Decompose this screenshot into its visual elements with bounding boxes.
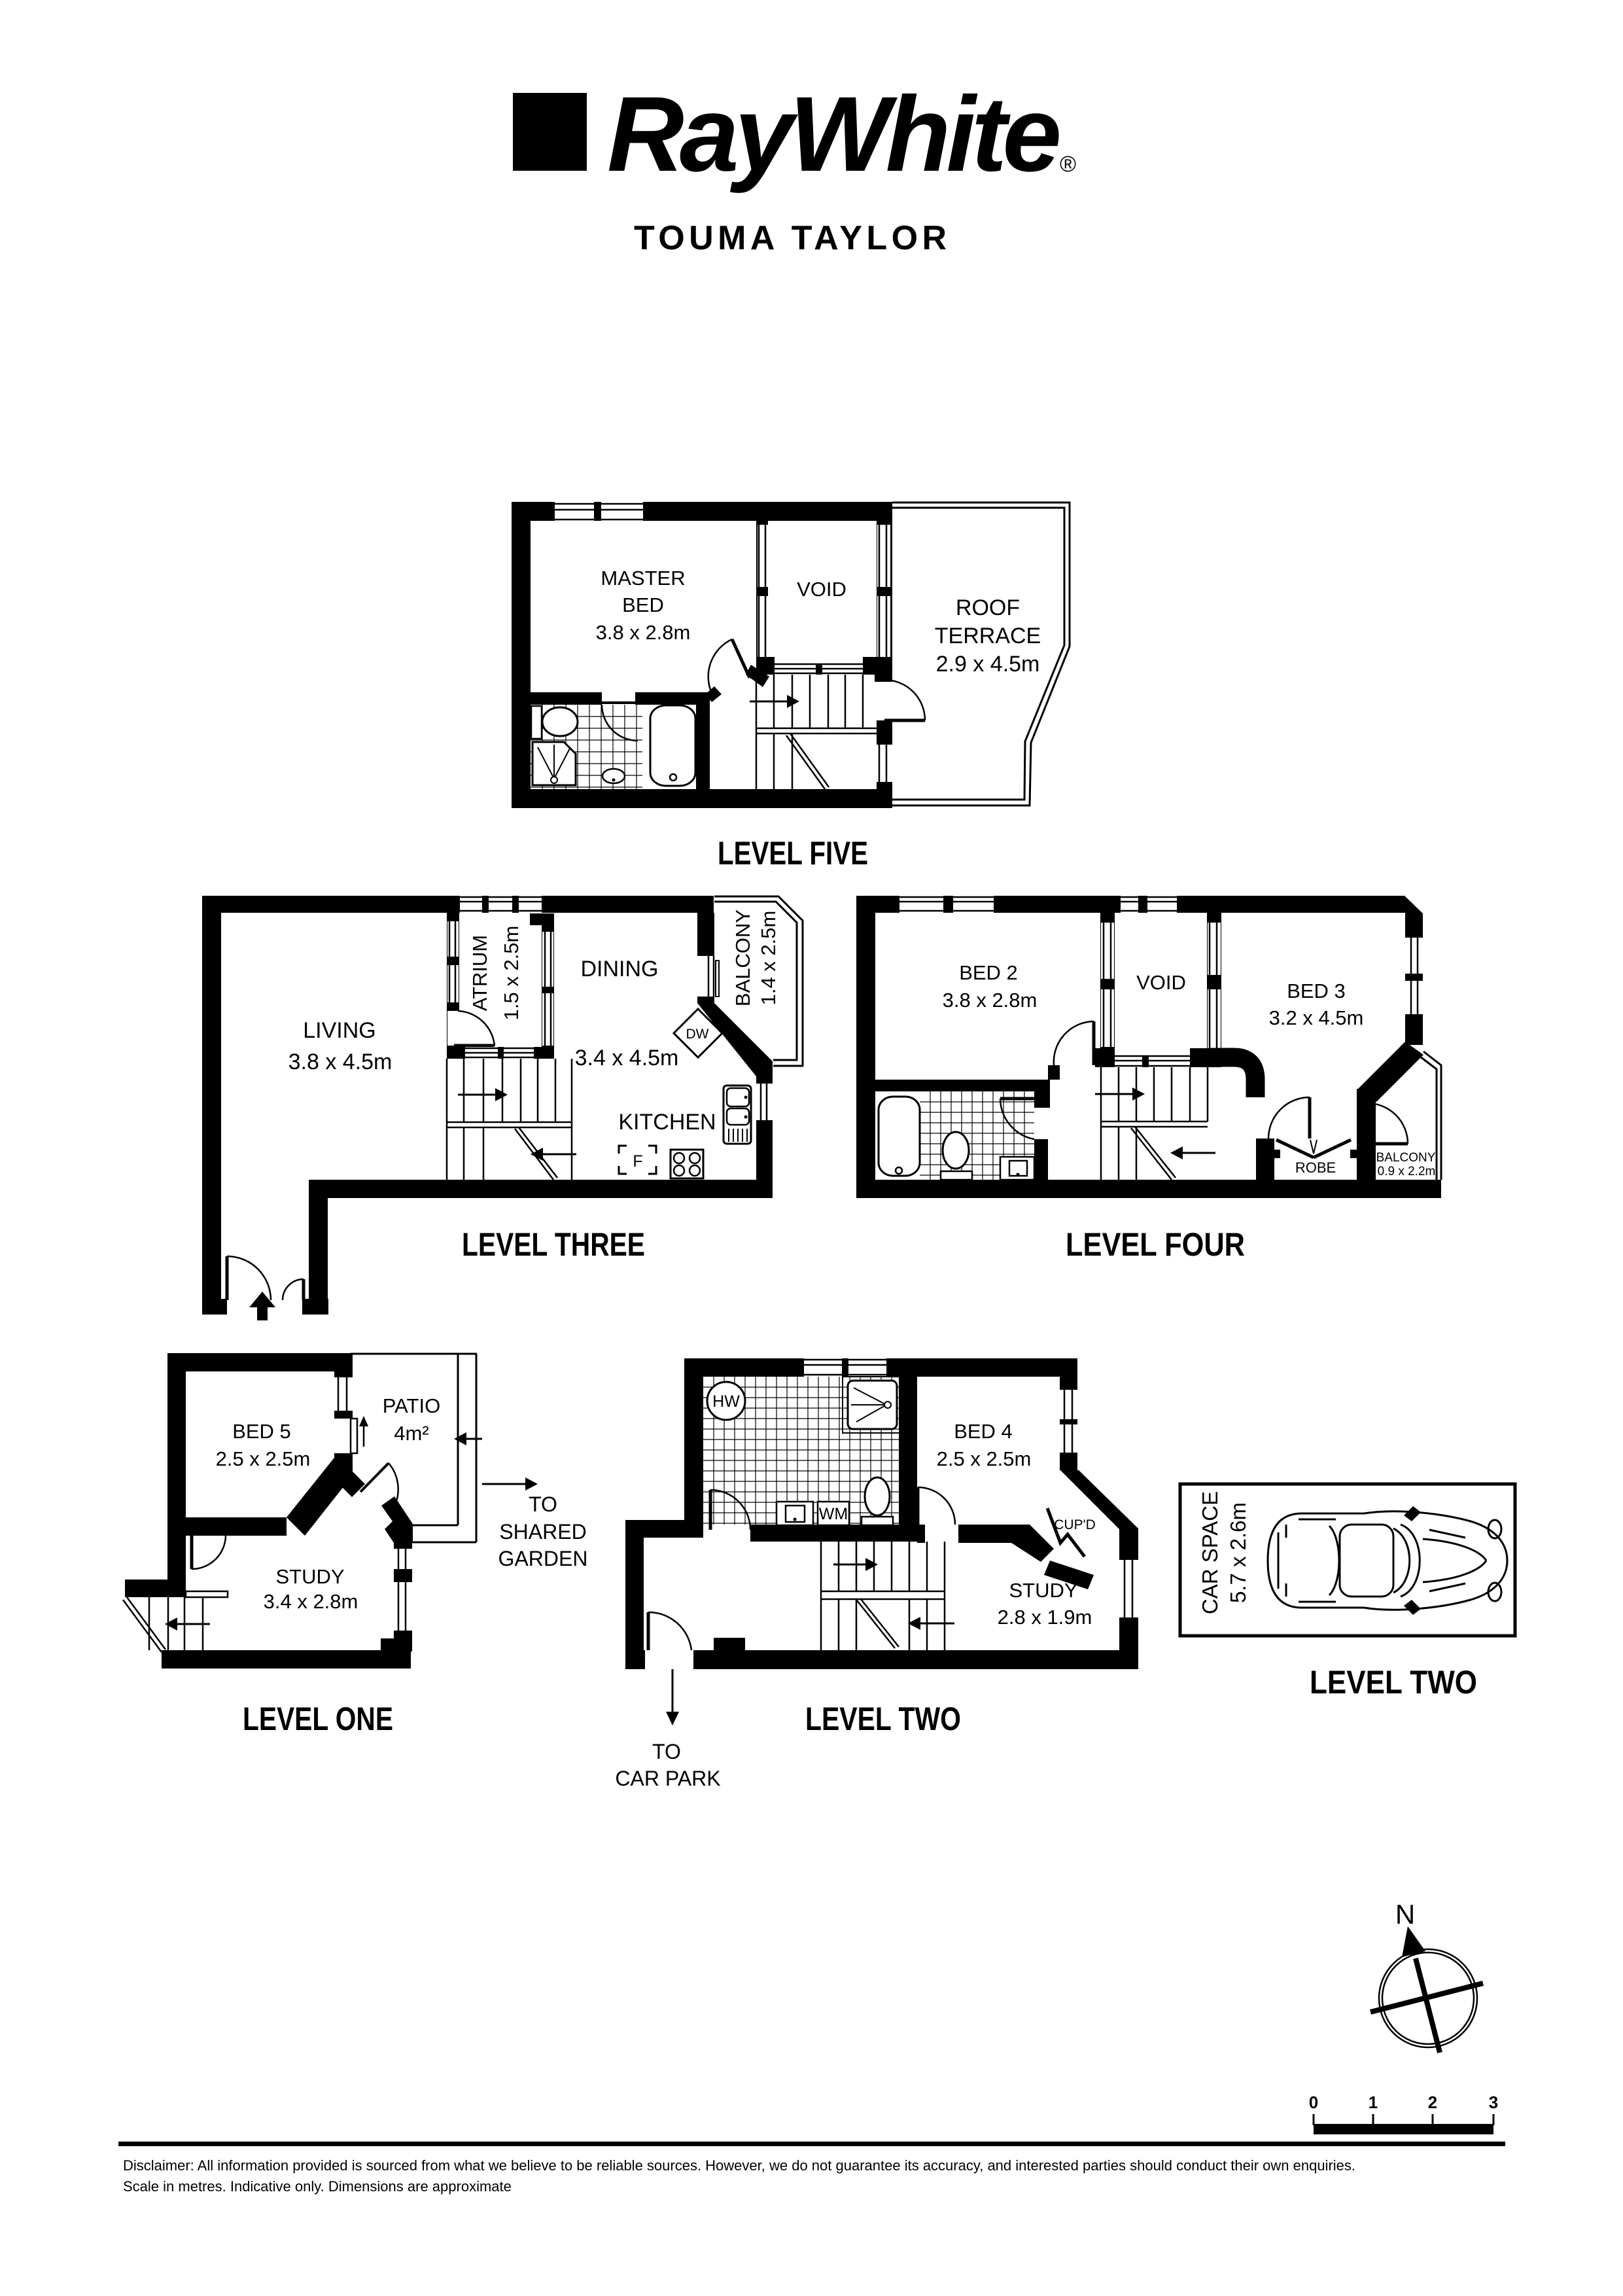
svg-text:3.8 x 2.8m: 3.8 x 2.8m [943, 989, 1038, 1012]
svg-text:3.8 x 4.5m: 3.8 x 4.5m [288, 1050, 393, 1074]
svg-text:1.5 x 2.5m: 1.5 x 2.5m [500, 926, 523, 1021]
svg-text:LEVEL TWO: LEVEL TWO [805, 1701, 961, 1737]
svg-text:2: 2 [1428, 2093, 1437, 2112]
svg-text:2.5 x 2.5m: 2.5 x 2.5m [937, 1447, 1032, 1470]
svg-text:TO: TO [652, 1740, 681, 1763]
svg-text:3.4 x 2.8m: 3.4 x 2.8m [264, 1590, 358, 1613]
svg-text:5.7 x 2.6m: 5.7 x 2.6m [1226, 1502, 1250, 1603]
svg-text:4m²: 4m² [394, 1422, 428, 1445]
svg-text:N: N [1395, 1899, 1415, 1930]
svg-text:STUDY: STUDY [275, 1565, 344, 1588]
svg-text:KITCHEN: KITCHEN [618, 1110, 716, 1135]
svg-text:SHARED: SHARED [499, 1520, 586, 1544]
svg-text:LEVEL FIVE: LEVEL FIVE [718, 835, 868, 872]
svg-text:LEVEL TWO: LEVEL TWO [1310, 1664, 1477, 1701]
svg-text:VOID: VOID [1136, 971, 1186, 994]
svg-text:TOUMA TAYLOR: TOUMA TAYLOR [634, 219, 952, 257]
svg-text:2.9 x 4.5m: 2.9 x 4.5m [936, 652, 1040, 677]
svg-text:STUDY: STUDY [1009, 1579, 1077, 1602]
svg-text:DINING: DINING [581, 957, 659, 981]
svg-text:2.8 x 1.9m: 2.8 x 1.9m [998, 1606, 1092, 1629]
svg-text:®: ® [1060, 152, 1076, 177]
svg-text:TO: TO [529, 1492, 557, 1516]
svg-text:BALCONY: BALCONY [731, 910, 754, 1006]
svg-text:WM: WM [819, 1505, 848, 1523]
svg-text:BED: BED [622, 593, 664, 616]
svg-text:ATRIUM: ATRIUM [468, 935, 491, 1012]
svg-text:BED 2: BED 2 [959, 961, 1018, 984]
svg-text:0: 0 [1309, 2093, 1318, 2112]
svg-text:0.9 x 2.2m: 0.9 x 2.2m [1378, 1165, 1436, 1178]
svg-text:LEVEL FOUR: LEVEL FOUR [1066, 1226, 1245, 1263]
svg-text:VOID: VOID [797, 578, 846, 601]
svg-text:HW: HW [712, 1392, 740, 1411]
svg-text:DW: DW [686, 1027, 709, 1042]
svg-text:ROOF: ROOF [956, 595, 1020, 620]
svg-text:GARDEN: GARDEN [498, 1547, 588, 1570]
svg-text:LEVEL ONE: LEVEL ONE [243, 1701, 393, 1737]
svg-text:1.4 x 2.5m: 1.4 x 2.5m [757, 911, 780, 1006]
svg-text:CAR PARK: CAR PARK [615, 1767, 720, 1790]
svg-text:2.5 x 2.5m: 2.5 x 2.5m [216, 1447, 311, 1470]
svg-text:TERRACE: TERRACE [935, 624, 1041, 648]
svg-text:3.2 x 4.5m: 3.2 x 4.5m [1269, 1006, 1364, 1029]
svg-text:RayWhite: RayWhite [607, 74, 1059, 194]
svg-text:MASTER: MASTER [601, 567, 685, 590]
svg-text:Scale in metres. Indicative on: Scale in metres. Indicative only. Dimens… [123, 2178, 512, 2195]
svg-text:LIVING: LIVING [303, 1018, 375, 1043]
svg-text:ROBE: ROBE [1295, 1159, 1336, 1176]
svg-text:PATIO: PATIO [383, 1394, 440, 1417]
svg-text:1: 1 [1369, 2093, 1378, 2112]
svg-text:CUP'D: CUP'D [1054, 1517, 1096, 1532]
svg-text:LEVEL THREE: LEVEL THREE [462, 1226, 645, 1263]
svg-text:Disclaimer: All information pr: Disclaimer: All information provided is … [123, 2157, 1355, 2174]
svg-text:3.8 x 2.8m: 3.8 x 2.8m [596, 621, 691, 644]
svg-text:F: F [633, 1152, 642, 1171]
svg-text:BED 4: BED 4 [954, 1420, 1013, 1443]
svg-text:3: 3 [1489, 2093, 1498, 2112]
svg-text:3.4 x 4.5m: 3.4 x 4.5m [575, 1046, 679, 1070]
svg-text:BED 5: BED 5 [232, 1420, 291, 1443]
svg-text:CAR SPACE: CAR SPACE [1198, 1491, 1222, 1614]
svg-text:BED 3: BED 3 [1287, 980, 1346, 1002]
svg-text:BALCONY: BALCONY [1376, 1151, 1436, 1165]
